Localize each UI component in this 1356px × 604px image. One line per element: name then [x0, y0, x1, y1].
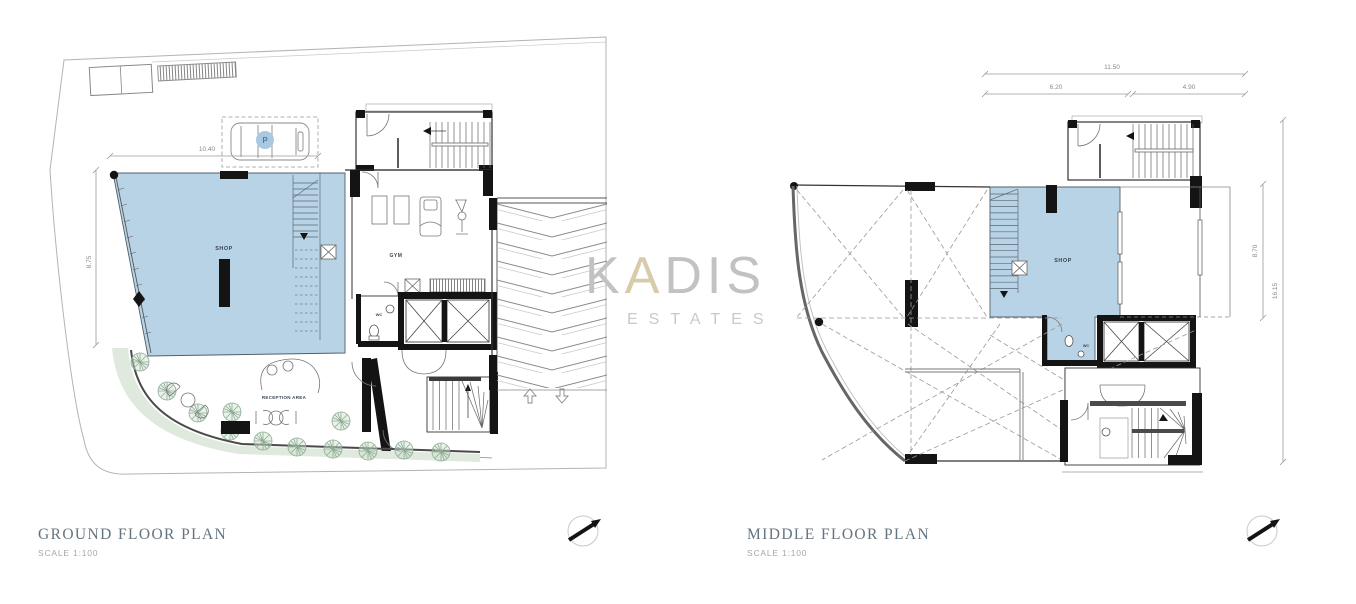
floorplan-drawing: P 10.40 8.75 [0, 0, 1356, 604]
shaft-icon [1012, 261, 1027, 275]
elevator-shaft [401, 295, 494, 347]
room-label-shop: SHOP [215, 246, 233, 252]
tree-icon [131, 353, 149, 371]
ground-floor-title-block: GROUND FLOOR PLAN SCALE 1:100 [38, 526, 227, 558]
tree-icon [288, 438, 306, 456]
ramp-direction-arrows [524, 389, 568, 403]
tree-icon [359, 442, 377, 460]
stair-block-top [356, 104, 493, 171]
dim-left-width: 6.20 [1050, 84, 1063, 91]
floorplan-sheet: P 10.40 8.75 [0, 0, 1356, 604]
dim-right-width: 4.90 [1183, 84, 1196, 91]
room-label-reception: RECEPTION AREA [262, 395, 307, 400]
reception-planter [221, 421, 250, 434]
plan-title: GROUND FLOOR PLAN [38, 526, 227, 544]
grating-strip [158, 62, 237, 81]
shaft-icon [405, 279, 420, 293]
middle-floor-plan: 11.50 6.20 4.90 16.15 8.70 [790, 64, 1286, 472]
elevator-shaft [1100, 318, 1193, 365]
room-label-gym: GYM [390, 253, 403, 259]
tree-icon [324, 440, 342, 458]
plan-scale: SCALE 1:100 [38, 548, 227, 558]
room-label-shop: SHOP [1054, 258, 1072, 264]
middle-floor-title-block: MIDDLE FLOOR PLAN SCALE 1:100 [747, 526, 930, 558]
wc-room: WC [356, 282, 402, 347]
tree-icon [189, 404, 207, 422]
shaft-icon [321, 245, 336, 259]
room-label-wc: WC [1083, 344, 1090, 348]
dim-width: 10.40 [199, 146, 216, 153]
tree-icon [395, 441, 413, 459]
tree-icon [332, 412, 350, 430]
gym-equipment [372, 196, 468, 236]
room-label-wc: WC [376, 312, 383, 317]
dim-total-height: 16.15 [1272, 282, 1279, 299]
parking-bay: P [222, 117, 318, 167]
void-edge [905, 369, 1023, 461]
dim-height: 8.75 [86, 255, 93, 268]
tree-icon [223, 403, 241, 421]
parking-symbol: P [262, 136, 268, 145]
ground-floor-plan: P 10.40 8.75 [50, 37, 607, 474]
plan-scale: SCALE 1:100 [747, 548, 930, 558]
landscaping [112, 348, 480, 462]
gym-room [345, 170, 493, 299]
shop-counter [219, 259, 230, 307]
planter-box [89, 64, 152, 95]
terrace [1120, 187, 1230, 317]
north-arrow-icon [1247, 516, 1280, 546]
tree-icon [432, 443, 450, 461]
north-arrow-icon [568, 516, 601, 546]
tree-icon [254, 432, 272, 450]
stair-block-bottom [1060, 368, 1203, 472]
car-ramp [489, 198, 607, 403]
dim-total-width: 11.50 [1104, 64, 1120, 71]
shop-room: SHOP [110, 171, 345, 356]
dim-terrace-height: 8.70 [1252, 244, 1259, 257]
plan-title: MIDDLE FLOOR PLAN [747, 526, 930, 544]
